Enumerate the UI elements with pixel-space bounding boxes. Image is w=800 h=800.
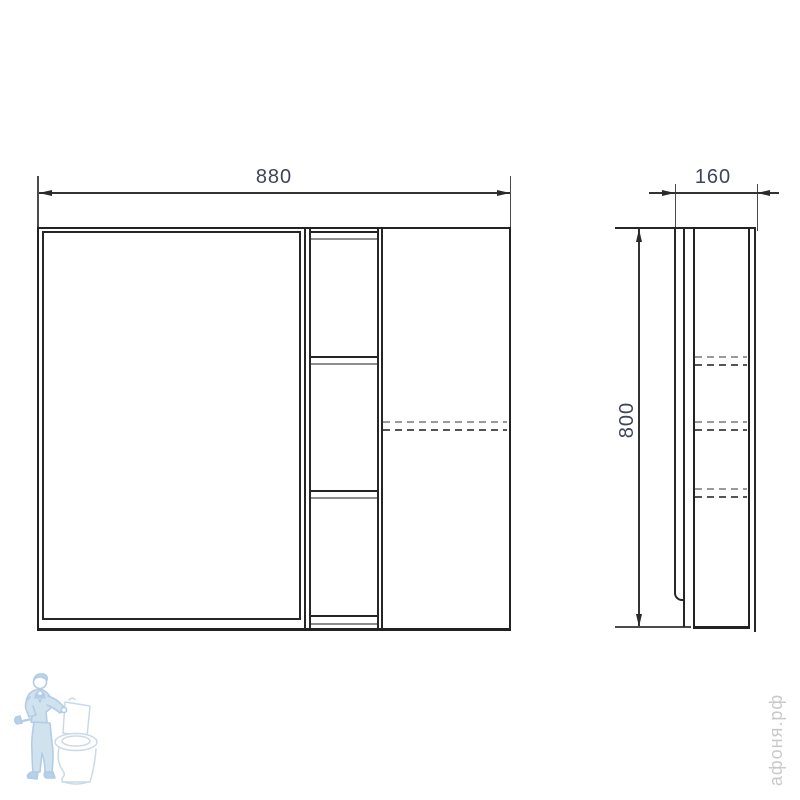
- depth-dim-arrow-left: [662, 190, 675, 196]
- height-dim-label: 800: [616, 390, 638, 450]
- height-dim-arrow-top: [636, 229, 642, 242]
- side-door-panel-lower-edge: [683, 598, 685, 627]
- plumber-toilet-logo-icon: [14, 669, 114, 794]
- watermark-site-text: афоня.рф: [765, 685, 787, 795]
- height-dim-line: [638, 229, 640, 627]
- height-ext-line-bottom: [615, 626, 691, 628]
- side-shelf3-dash-upper: [695, 488, 747, 490]
- depth-dim-label: 160: [683, 166, 743, 188]
- depth-dim-arrow-right: [757, 190, 770, 196]
- side-body: [693, 227, 750, 629]
- side-shelf3-dash-lower: [695, 496, 747, 498]
- side-view: 160 800: [0, 0, 800, 800]
- side-shelf1-dash-lower: [695, 364, 747, 366]
- side-shelf1-dash-upper: [695, 356, 747, 358]
- side-door-panel: [674, 227, 685, 601]
- side-back-line: [754, 227, 756, 632]
- side-shelf2-dash-lower: [695, 429, 747, 431]
- side-shelf2-dash-upper: [695, 421, 747, 423]
